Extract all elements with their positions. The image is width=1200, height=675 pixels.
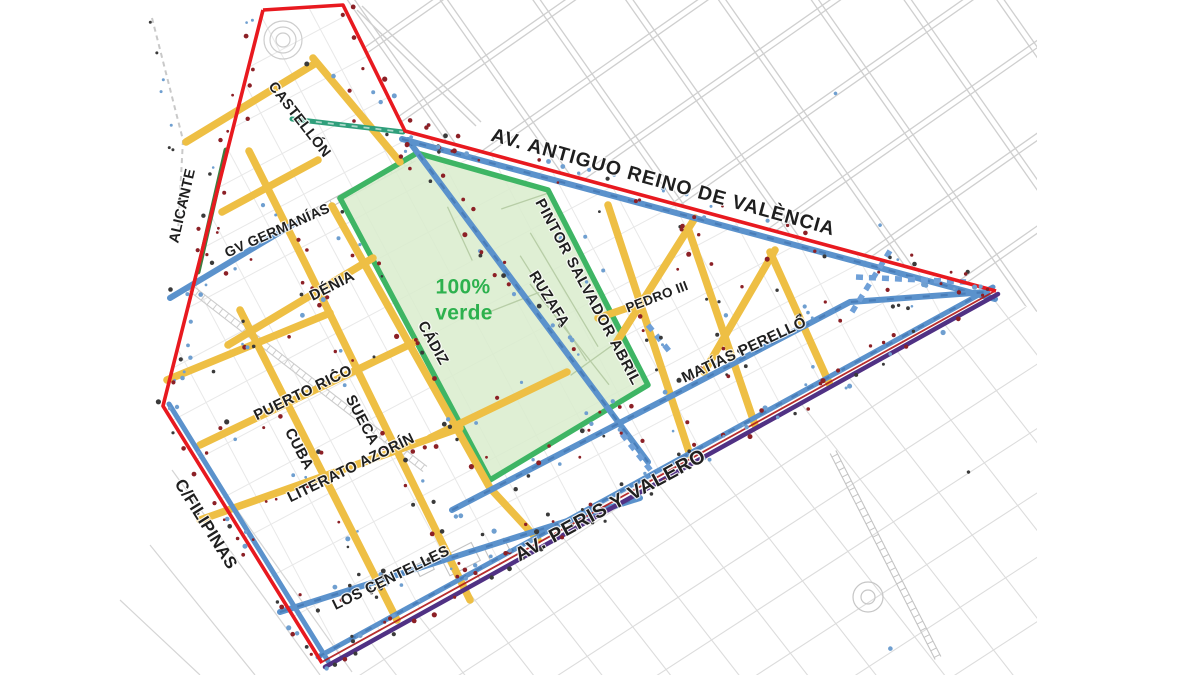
street-east-cross-2 — [688, 228, 755, 425]
dashed-blue-routes — [622, 246, 966, 472]
street-castellon-line — [313, 58, 400, 162]
street-gv-germanias-line — [170, 225, 292, 298]
street-east-diag-1 — [616, 218, 695, 343]
russafa-map: AV. ANTIGUO REINO DE VALÈNCIAAV. PERIS Y… — [0, 0, 1200, 675]
street-denia-line — [228, 258, 373, 345]
map-canvas — [0, 0, 1200, 675]
street-pocket-a — [186, 63, 316, 142]
